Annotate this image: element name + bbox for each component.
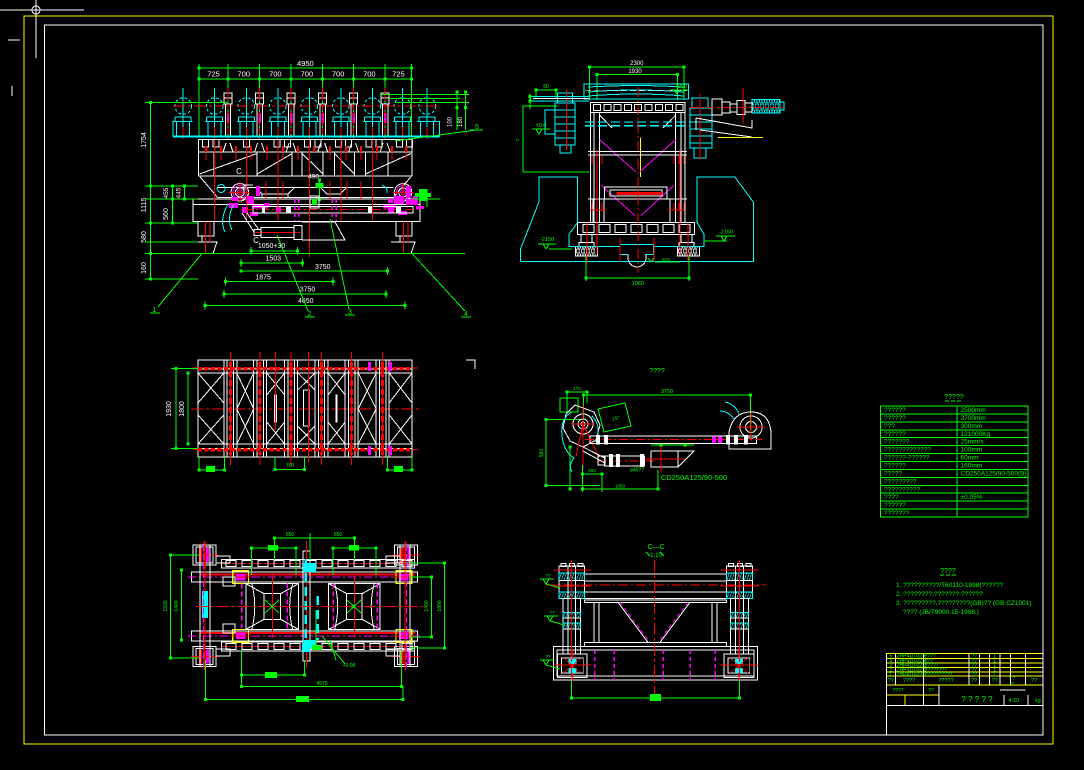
svg-text:1930: 1930	[163, 600, 169, 611]
svg-text:1930: 1930	[628, 69, 642, 75]
svg-text:??: ??	[928, 688, 934, 694]
svg-text:700: 700	[301, 70, 314, 79]
svg-text:121000Kg: 121000Kg	[961, 431, 991, 438]
svg-text:5: 5	[475, 124, 479, 131]
svg-text:? ?: ? ?	[1009, 676, 1016, 681]
svg-text:725: 725	[392, 70, 405, 79]
svg-text:??????-??????: ??????-??????	[884, 455, 930, 462]
svg-text:-2150: -2150	[540, 237, 554, 243]
svg-text:??????: ??????	[884, 463, 906, 470]
svg-text:??: ??	[545, 573, 551, 578]
svg-text:ø: ø	[351, 604, 355, 610]
svg-text:4:10: 4:10	[1009, 698, 1020, 704]
svg-text:?????: ?????	[944, 394, 964, 401]
svg-text:560: 560	[539, 449, 545, 458]
svg-text:-2160: -2160	[719, 230, 733, 236]
svg-text:??????: ??????	[884, 502, 906, 509]
svg-text:160: 160	[141, 262, 148, 274]
svg-text:1875: 1875	[255, 275, 271, 282]
svg-text:????: ????	[892, 688, 903, 694]
svg-text:CD250A125/90-500(B): CD250A125/90-500(B)	[961, 470, 1027, 477]
svg-text:4575: 4575	[316, 681, 327, 687]
svg-text:4650: 4650	[298, 298, 314, 305]
svg-text:170: 170	[573, 386, 581, 391]
svg-text:????: ????	[940, 568, 956, 575]
svg-text:700: 700	[269, 70, 282, 79]
svg-text:2300: 2300	[630, 61, 644, 67]
svg-text:??: ??	[545, 654, 551, 659]
svg-text:160mm: 160mm	[961, 463, 983, 470]
svg-text:2. ????????,???????.??????: 2. ????????,???????.??????	[896, 591, 983, 598]
svg-text:C: C	[253, 236, 259, 245]
svg-text:60mm: 60mm	[961, 455, 979, 462]
svg-text:100: 100	[448, 116, 454, 127]
svg-text:700: 700	[238, 70, 251, 79]
svg-text:???? (JB/T9000.15-1998.): ???? (JB/T9000.15-1998.)	[903, 609, 979, 616]
svg-text:1115: 1115	[141, 198, 148, 213]
svg-text:C—C: C—C	[647, 544, 664, 551]
svg-text:??????: ??????	[884, 407, 906, 414]
svg-text:1050: 1050	[615, 484, 626, 489]
svg-text:3750: 3750	[661, 389, 673, 395]
svg-text:??: ??	[549, 610, 555, 615]
svg-text:??: ??	[971, 678, 977, 684]
svg-text:?: ?	[516, 138, 522, 141]
svg-text:±0.05%: ±0.05%	[961, 494, 983, 501]
svg-text:490: 490	[308, 174, 319, 181]
svg-text:580: 580	[141, 231, 148, 243]
svg-text:???????: ???????	[884, 439, 910, 446]
svg-text:??????????: ??????????	[925, 672, 953, 678]
svg-text:? ? ? ? ?: ? ? ? ? ?	[961, 695, 993, 704]
svg-text:??: ??	[992, 678, 998, 684]
svg-text:CD250A125/90-500: CD250A125/90-500	[661, 473, 727, 482]
svg-text:1400: 1400	[174, 600, 180, 611]
svg-text:????: ????	[903, 678, 915, 684]
svg-text:?????????????: ?????????????	[884, 447, 931, 454]
svg-text:+0.08: +0.08	[343, 663, 356, 669]
svg-text:1060: 1060	[632, 281, 644, 287]
svg-text:??????????: ??????????	[884, 486, 921, 493]
svg-text:??????: ??????	[884, 431, 906, 438]
svg-text:25mm/s: 25mm/s	[961, 439, 985, 446]
svg-text:700: 700	[286, 463, 295, 469]
svg-text:ZHP410-02-1: ZHP410-02-1	[897, 672, 927, 678]
svg-text:4950: 4950	[297, 59, 314, 68]
svg-text:1: 1	[889, 672, 892, 678]
svg-text:300mm: 300mm	[961, 423, 983, 430]
svg-text:260: 260	[588, 468, 596, 473]
svg-text:C: C	[236, 167, 242, 176]
svg-text:+800: +800	[675, 84, 687, 90]
svg-text:1503: 1503	[266, 256, 282, 263]
svg-text:1800: 1800	[437, 600, 443, 611]
svg-text:??????: ??????	[884, 415, 906, 422]
svg-text:1: 1	[993, 672, 996, 678]
svg-text:180: 180	[458, 116, 464, 127]
svg-text:1930: 1930	[166, 401, 173, 417]
svg-text:700: 700	[363, 70, 376, 79]
svg-text:??: ??	[971, 672, 977, 678]
svg-text:3750: 3750	[300, 287, 316, 294]
svg-text:????: ????	[649, 368, 665, 375]
svg-text:??: ??	[888, 678, 894, 684]
svg-text:650: 650	[334, 532, 343, 538]
svg-text:3700mm: 3700mm	[961, 415, 986, 422]
svg-text:?????: ?????	[884, 470, 902, 477]
svg-text:650: 650	[286, 532, 295, 538]
svg-text:?????????: ?????????	[884, 478, 917, 485]
svg-text:560: 560	[163, 208, 170, 220]
svg-text:???????: ???????	[884, 510, 910, 517]
svg-text:725: 725	[207, 70, 220, 79]
svg-text:1:10: 1:10	[650, 553, 662, 559]
svg-text:2500mm: 2500mm	[961, 407, 986, 414]
svg-text:700: 700	[332, 70, 345, 79]
svg-text:3. ?????????,?????????(GB)?? (: 3. ?????????,?????????(GB)?? (GB CZ1001)	[896, 600, 1032, 607]
svg-text:1400: 1400	[424, 600, 430, 611]
svg-text:100mm: 100mm	[961, 447, 983, 454]
svg-text:kg: kg	[1035, 698, 1041, 704]
svg-text:3750: 3750	[315, 264, 331, 271]
svg-text:??: ??	[1009, 681, 1015, 686]
svg-text:455: 455	[163, 187, 170, 198]
svg-text:50: 50	[543, 84, 549, 90]
svg-text:570: 570	[662, 257, 670, 262]
svg-text:?????: ?????	[938, 678, 953, 684]
svg-text:1. ??????????/T60110-1998(????: 1. ??????????/T60110-1998(??????	[896, 582, 1004, 589]
svg-text:±0.0: ±0.0	[536, 123, 547, 129]
svg-text:1754: 1754	[141, 132, 148, 148]
svg-text:445: 445	[176, 187, 183, 198]
svg-text:1800: 1800	[179, 401, 186, 417]
svg-text:??: ??	[1031, 678, 1037, 684]
svg-text:????: ????	[884, 494, 899, 501]
svg-text:???: ???	[884, 423, 895, 430]
svg-text:ø45??: ø45??	[630, 468, 644, 474]
